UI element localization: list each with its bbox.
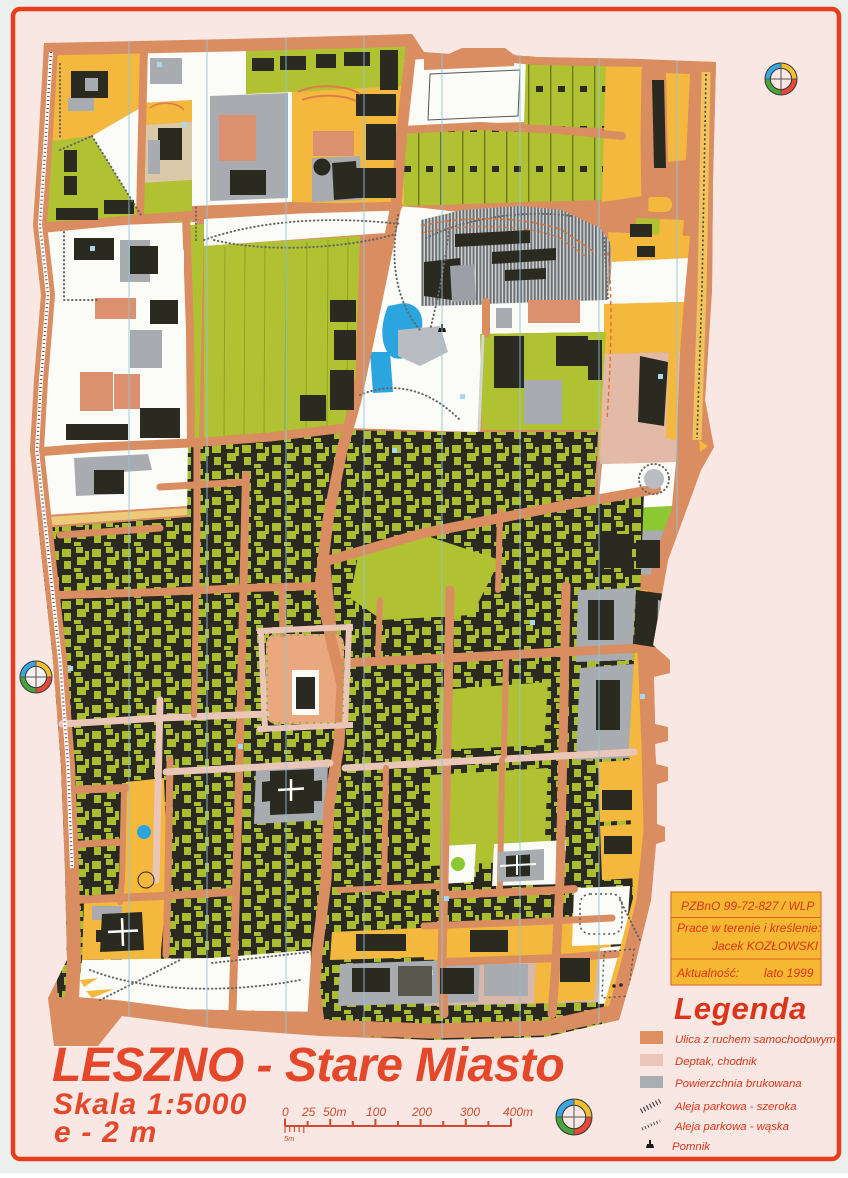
svg-text:50m: 50m xyxy=(323,1105,346,1119)
svg-text:Ulica z ruchem samochodowym: Ulica z ruchem samochodowym xyxy=(675,1034,836,1046)
svg-text:100: 100 xyxy=(366,1105,386,1119)
svg-text:Aktualność:: Aktualność: xyxy=(676,966,739,980)
svg-text:Aleja parkowa - szeroka: Aleja parkowa - szeroka xyxy=(674,1101,797,1113)
svg-text:Legenda: Legenda xyxy=(674,991,807,1026)
svg-text:0: 0 xyxy=(282,1105,289,1119)
svg-text:400m: 400m xyxy=(503,1105,533,1119)
svg-text:PZBnO 99-72-827 / WLP: PZBnO 99-72-827 / WLP xyxy=(681,899,814,913)
svg-text:200: 200 xyxy=(411,1105,432,1119)
svg-text:5m: 5m xyxy=(284,1134,294,1143)
svg-text:Prace w terenie i kreślenie:: Prace w terenie i kreślenie: xyxy=(677,921,821,935)
svg-text:Powierzchnia brukowana: Powierzchnia brukowana xyxy=(675,1078,802,1090)
svg-text:Deptak, chodnik: Deptak, chodnik xyxy=(675,1056,758,1068)
svg-text:25: 25 xyxy=(301,1105,316,1119)
svg-text:Pomnik: Pomnik xyxy=(672,1141,711,1153)
svg-text:Aleja parkowa - wąska: Aleja parkowa - wąska xyxy=(674,1121,789,1133)
svg-text:Jacek KOZŁOWSKI: Jacek KOZŁOWSKI xyxy=(711,939,819,953)
svg-text:300: 300 xyxy=(460,1105,480,1119)
svg-text:e - 2 m: e - 2 m xyxy=(54,1116,157,1149)
svg-text:LESZNO - Stare Miasto: LESZNO - Stare Miasto xyxy=(52,1039,564,1092)
svg-text:lato 1999: lato 1999 xyxy=(764,966,814,980)
